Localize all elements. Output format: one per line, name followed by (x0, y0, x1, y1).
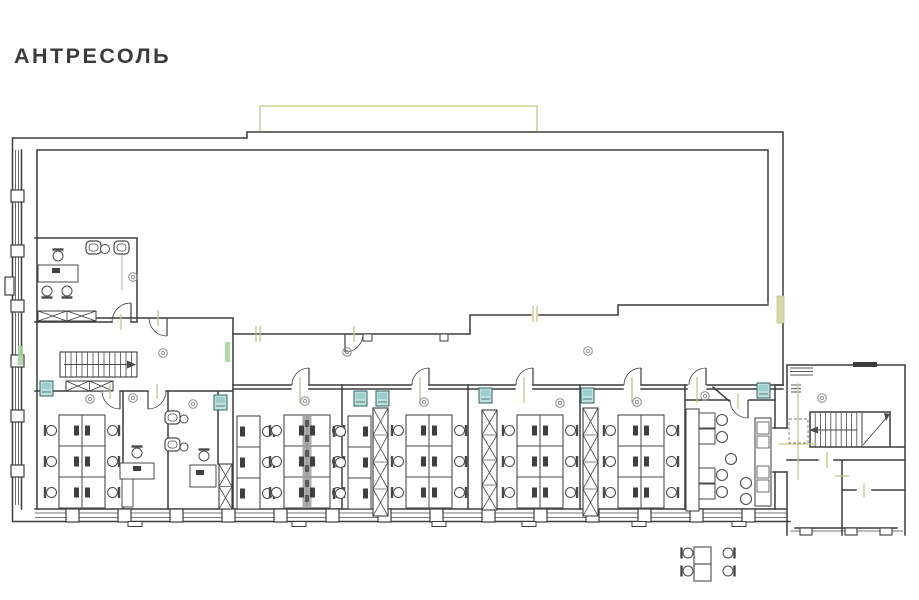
floor-plan-drawing: АНТРЕСОЛЬ (0, 0, 919, 600)
circle-symbol (159, 349, 168, 358)
stool (717, 487, 728, 498)
right-wing-window-band (790, 528, 903, 535)
outdoor-table (694, 547, 711, 564)
desk-cluster (237, 416, 274, 509)
office-chair (455, 425, 467, 436)
stool (741, 478, 752, 489)
armchair (165, 411, 180, 424)
office-chair (566, 456, 578, 467)
office-chair (392, 425, 404, 436)
kitchen-counter (755, 418, 771, 506)
outdoor-table (694, 564, 711, 581)
round-table (101, 245, 110, 254)
stool (717, 470, 728, 481)
desk (190, 465, 216, 487)
plan-title: АНТРЕСОЛЬ (14, 44, 171, 68)
office-chair (682, 548, 694, 559)
desk (122, 479, 133, 507)
office-chair (723, 566, 735, 577)
wall-unit-teal (40, 381, 53, 396)
desk-cluster (503, 415, 577, 508)
office-chair (667, 487, 679, 498)
braced-column (482, 410, 497, 510)
lintel-mark (853, 362, 877, 367)
office-chair (132, 447, 143, 459)
office-chair (62, 286, 73, 298)
braced-column (583, 408, 598, 516)
circle-symbol (556, 399, 565, 408)
office-chair (455, 487, 467, 498)
office-chair (108, 425, 120, 436)
door-swing (102, 391, 120, 409)
armchair (165, 438, 180, 451)
cafe-table (699, 468, 715, 483)
railing-hatches (38, 311, 113, 391)
hatch-railing (66, 381, 113, 391)
armchair (86, 241, 101, 254)
kitchen-counter (686, 409, 699, 511)
office-chair (42, 286, 53, 298)
wall-unit-teal (581, 388, 594, 403)
office-chair (667, 456, 679, 467)
office-chair (604, 425, 616, 436)
office-chair (392, 487, 404, 498)
stool (726, 454, 737, 465)
braced-column (373, 408, 388, 516)
roof-outline (260, 106, 537, 131)
office-chair (45, 487, 57, 498)
wall-unit-teal (214, 395, 227, 410)
round-table (180, 443, 188, 451)
office-chair (566, 487, 578, 498)
window-mark (777, 296, 784, 323)
circle-symbol (129, 273, 138, 282)
office-chair (604, 456, 616, 467)
armchair (114, 241, 129, 254)
office-chair (45, 425, 57, 436)
circle-symbol (129, 394, 138, 403)
wall-unit-teal (479, 388, 492, 403)
kitchen-area (686, 409, 771, 511)
office-chair (45, 456, 57, 467)
office-chair (53, 250, 64, 262)
wall-bay-bump (5, 277, 14, 295)
round-table (180, 415, 188, 423)
staircase-right (809, 413, 890, 447)
office-chair (455, 456, 467, 467)
office-chair (108, 487, 120, 498)
desk-cluster (334, 416, 371, 509)
office-chair (503, 487, 515, 498)
office-chair (108, 456, 120, 467)
vent-mark (225, 342, 230, 362)
circle-symbol (701, 392, 710, 401)
office-chair (682, 566, 694, 577)
stool (717, 415, 728, 426)
office-chair (503, 425, 515, 436)
office-chair (566, 425, 578, 436)
wall-unit-teal (354, 391, 367, 406)
office-chair (604, 487, 616, 498)
circle-symbol (818, 394, 827, 403)
door-swing (730, 400, 748, 418)
office-chair (199, 450, 210, 462)
cafe-table (699, 484, 715, 499)
circle-symbol (584, 347, 593, 356)
circle-symbol (189, 400, 198, 409)
hatch-railing (38, 311, 96, 321)
desk-cluster (45, 415, 119, 508)
vent-mark (18, 346, 23, 365)
circle-symbol (86, 395, 95, 404)
office-chair (723, 548, 735, 559)
desk (38, 265, 78, 282)
wall-unit-teal (376, 391, 389, 406)
braced-column (219, 464, 232, 509)
stool (741, 494, 752, 505)
stool (717, 432, 728, 443)
circle-symbol (633, 398, 642, 407)
office-chair (392, 456, 404, 467)
cafe-table (699, 429, 715, 444)
office-chair (667, 425, 679, 436)
desk-cluster (392, 415, 466, 508)
staircase-left (60, 352, 137, 377)
circle-symbol (301, 397, 310, 406)
office-chair (503, 456, 515, 467)
circle-symbol (420, 398, 429, 407)
furniture (18, 241, 784, 581)
cafe-table (699, 413, 715, 428)
desk-cluster (604, 415, 678, 508)
wall-unit-teal (757, 383, 770, 398)
